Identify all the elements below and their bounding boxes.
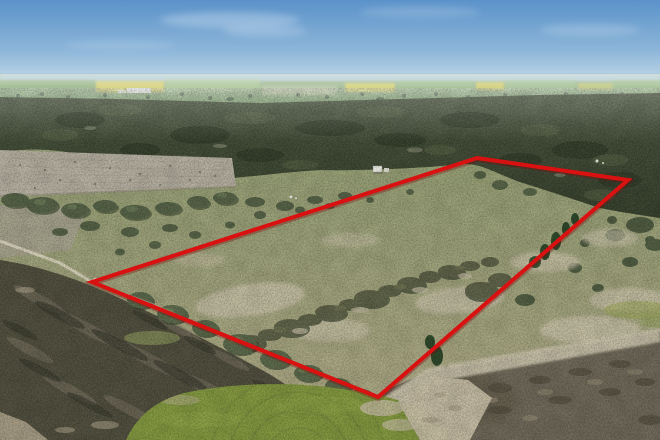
- grain-texture: [0, 88, 660, 440]
- aerial-photo: [0, 0, 660, 440]
